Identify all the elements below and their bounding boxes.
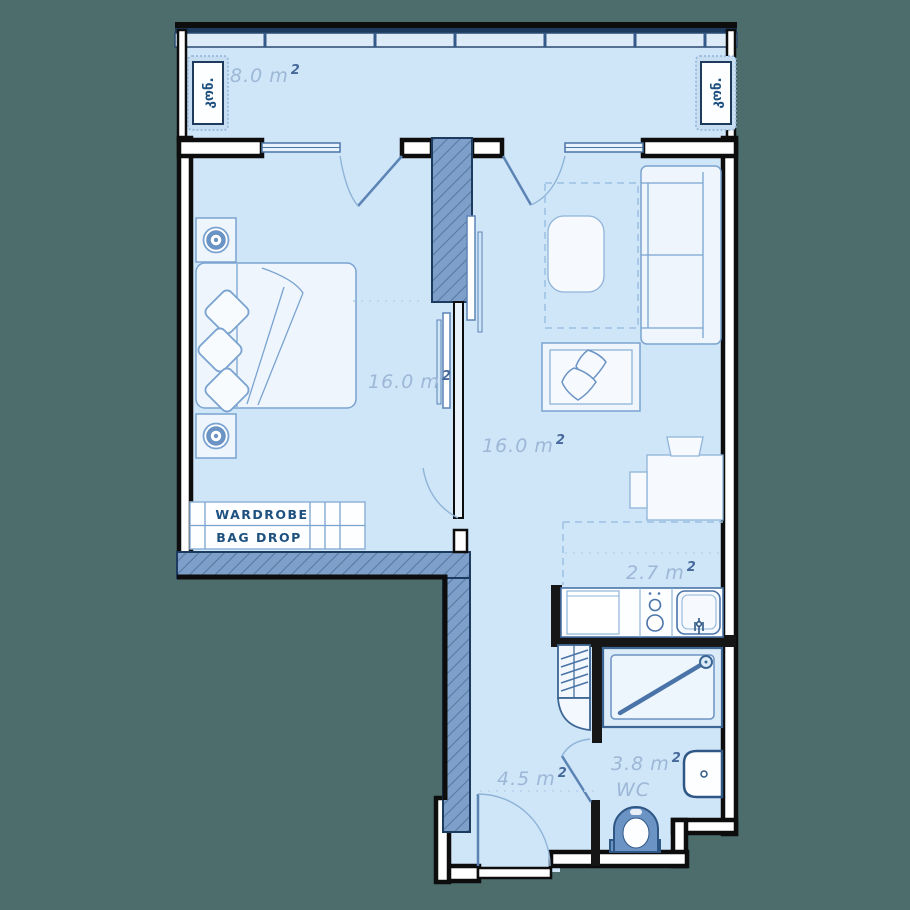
living-area-label: 16.0m2 <box>482 433 566 457</box>
wall-end-cap <box>454 530 467 552</box>
floor-plan: WARDROBE BAG DROP <box>0 0 910 910</box>
left-wall <box>179 138 191 558</box>
wc-door-stub <box>591 800 600 866</box>
fridge <box>567 591 619 634</box>
hatched-wall-edge <box>177 577 445 800</box>
armchair-with-throw <box>542 343 640 411</box>
ac-left-label: კონ. <box>201 77 217 108</box>
floor-plan-canvas: WARDROBE BAG DROP <box>0 0 910 910</box>
nightstand-top <box>196 218 236 262</box>
kitchen-sink <box>677 591 720 634</box>
faucet-icon <box>701 771 707 777</box>
shower <box>603 648 722 727</box>
entrance-threshold <box>478 868 551 878</box>
nightstand-bottom <box>196 414 236 458</box>
column-right-stub <box>472 140 502 156</box>
living-top-wall <box>643 140 736 156</box>
bathroom-sink <box>684 751 722 797</box>
bathroom-bottom-wall <box>551 852 687 866</box>
double-bed <box>196 263 356 414</box>
bedroom-top-wall <box>179 140 262 156</box>
table-lamp-icon <box>204 228 229 253</box>
column-left-stub <box>402 140 432 156</box>
bag-drop-label: BAG DROP <box>216 530 302 545</box>
wardrobe: WARDROBE BAG DROP <box>190 502 365 549</box>
wc-label: WC <box>616 779 650 801</box>
structural-column <box>432 138 472 302</box>
table-lamp-icon <box>204 424 229 449</box>
partition-wall <box>454 302 463 518</box>
balcony-glazing <box>175 22 737 47</box>
balcony-left-wall <box>178 30 186 142</box>
bedroom-area-label: 16.0m2 <box>368 369 452 393</box>
sofa <box>641 166 721 344</box>
desk-side-unit <box>630 472 647 508</box>
ac-unit-left: კონ. <box>188 56 228 130</box>
hatched-wall-horizontal <box>177 552 470 578</box>
right-wall <box>723 138 736 834</box>
coffee-table <box>548 216 604 292</box>
ac-unit-right: კონ. <box>696 56 736 130</box>
wardrobe-label: WARDROBE <box>215 507 308 522</box>
desk-chair <box>667 437 703 456</box>
hall-bath-stub <box>592 643 602 743</box>
ac-right-label: კონ. <box>709 77 725 108</box>
